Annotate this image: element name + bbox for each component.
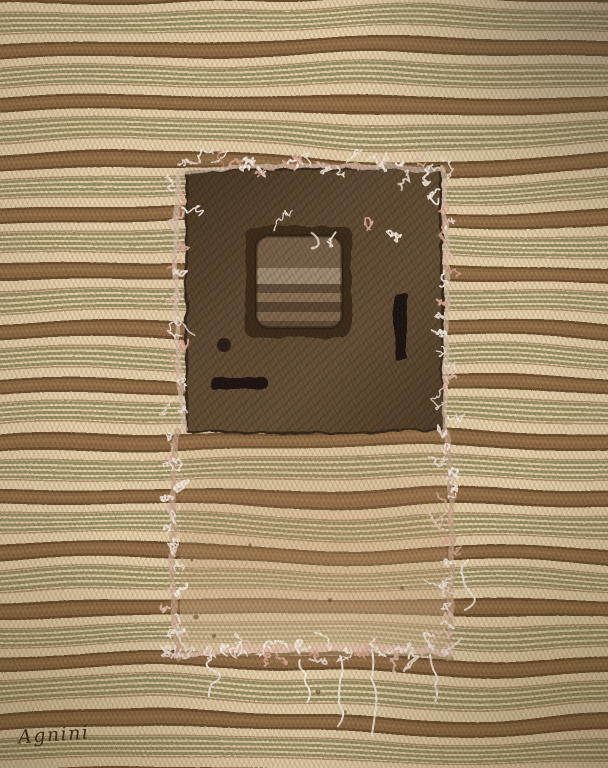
- fabric-grain: [0, 0, 608, 768]
- painting-svg: [0, 0, 608, 768]
- artwork-canvas: Agnini: [0, 0, 608, 768]
